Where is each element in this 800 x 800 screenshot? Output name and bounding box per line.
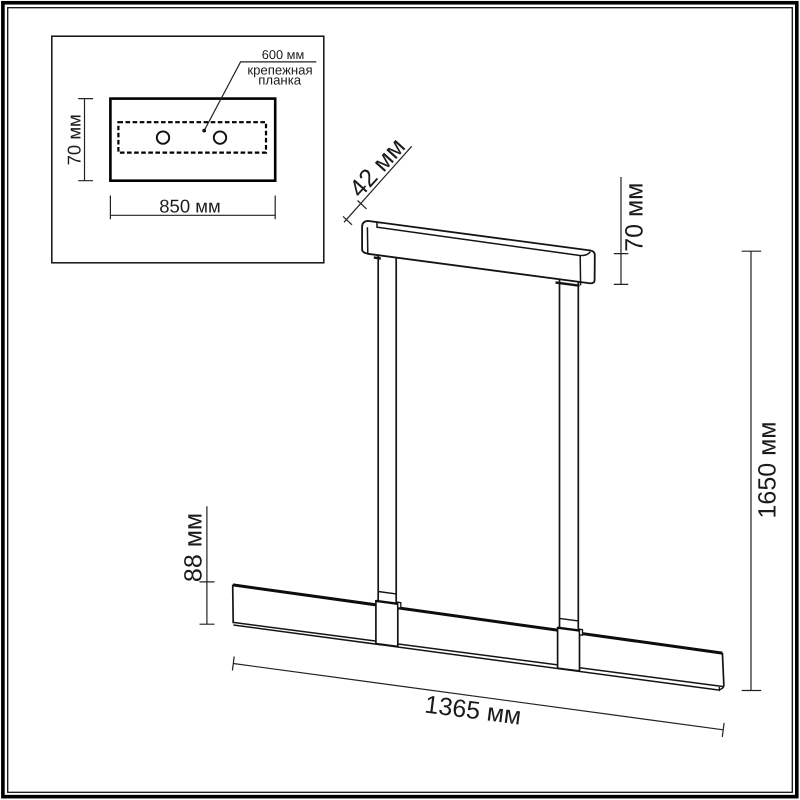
svg-text:70 мм: 70 мм: [620, 183, 648, 252]
svg-text:1650 мм: 1650 мм: [753, 422, 781, 519]
svg-text:88 мм: 88 мм: [180, 513, 208, 582]
svg-text:планка: планка: [258, 72, 302, 87]
svg-text:850 мм: 850 мм: [159, 195, 220, 216]
svg-text:70 мм: 70 мм: [64, 114, 85, 165]
svg-text:600 мм: 600 мм: [262, 47, 305, 62]
